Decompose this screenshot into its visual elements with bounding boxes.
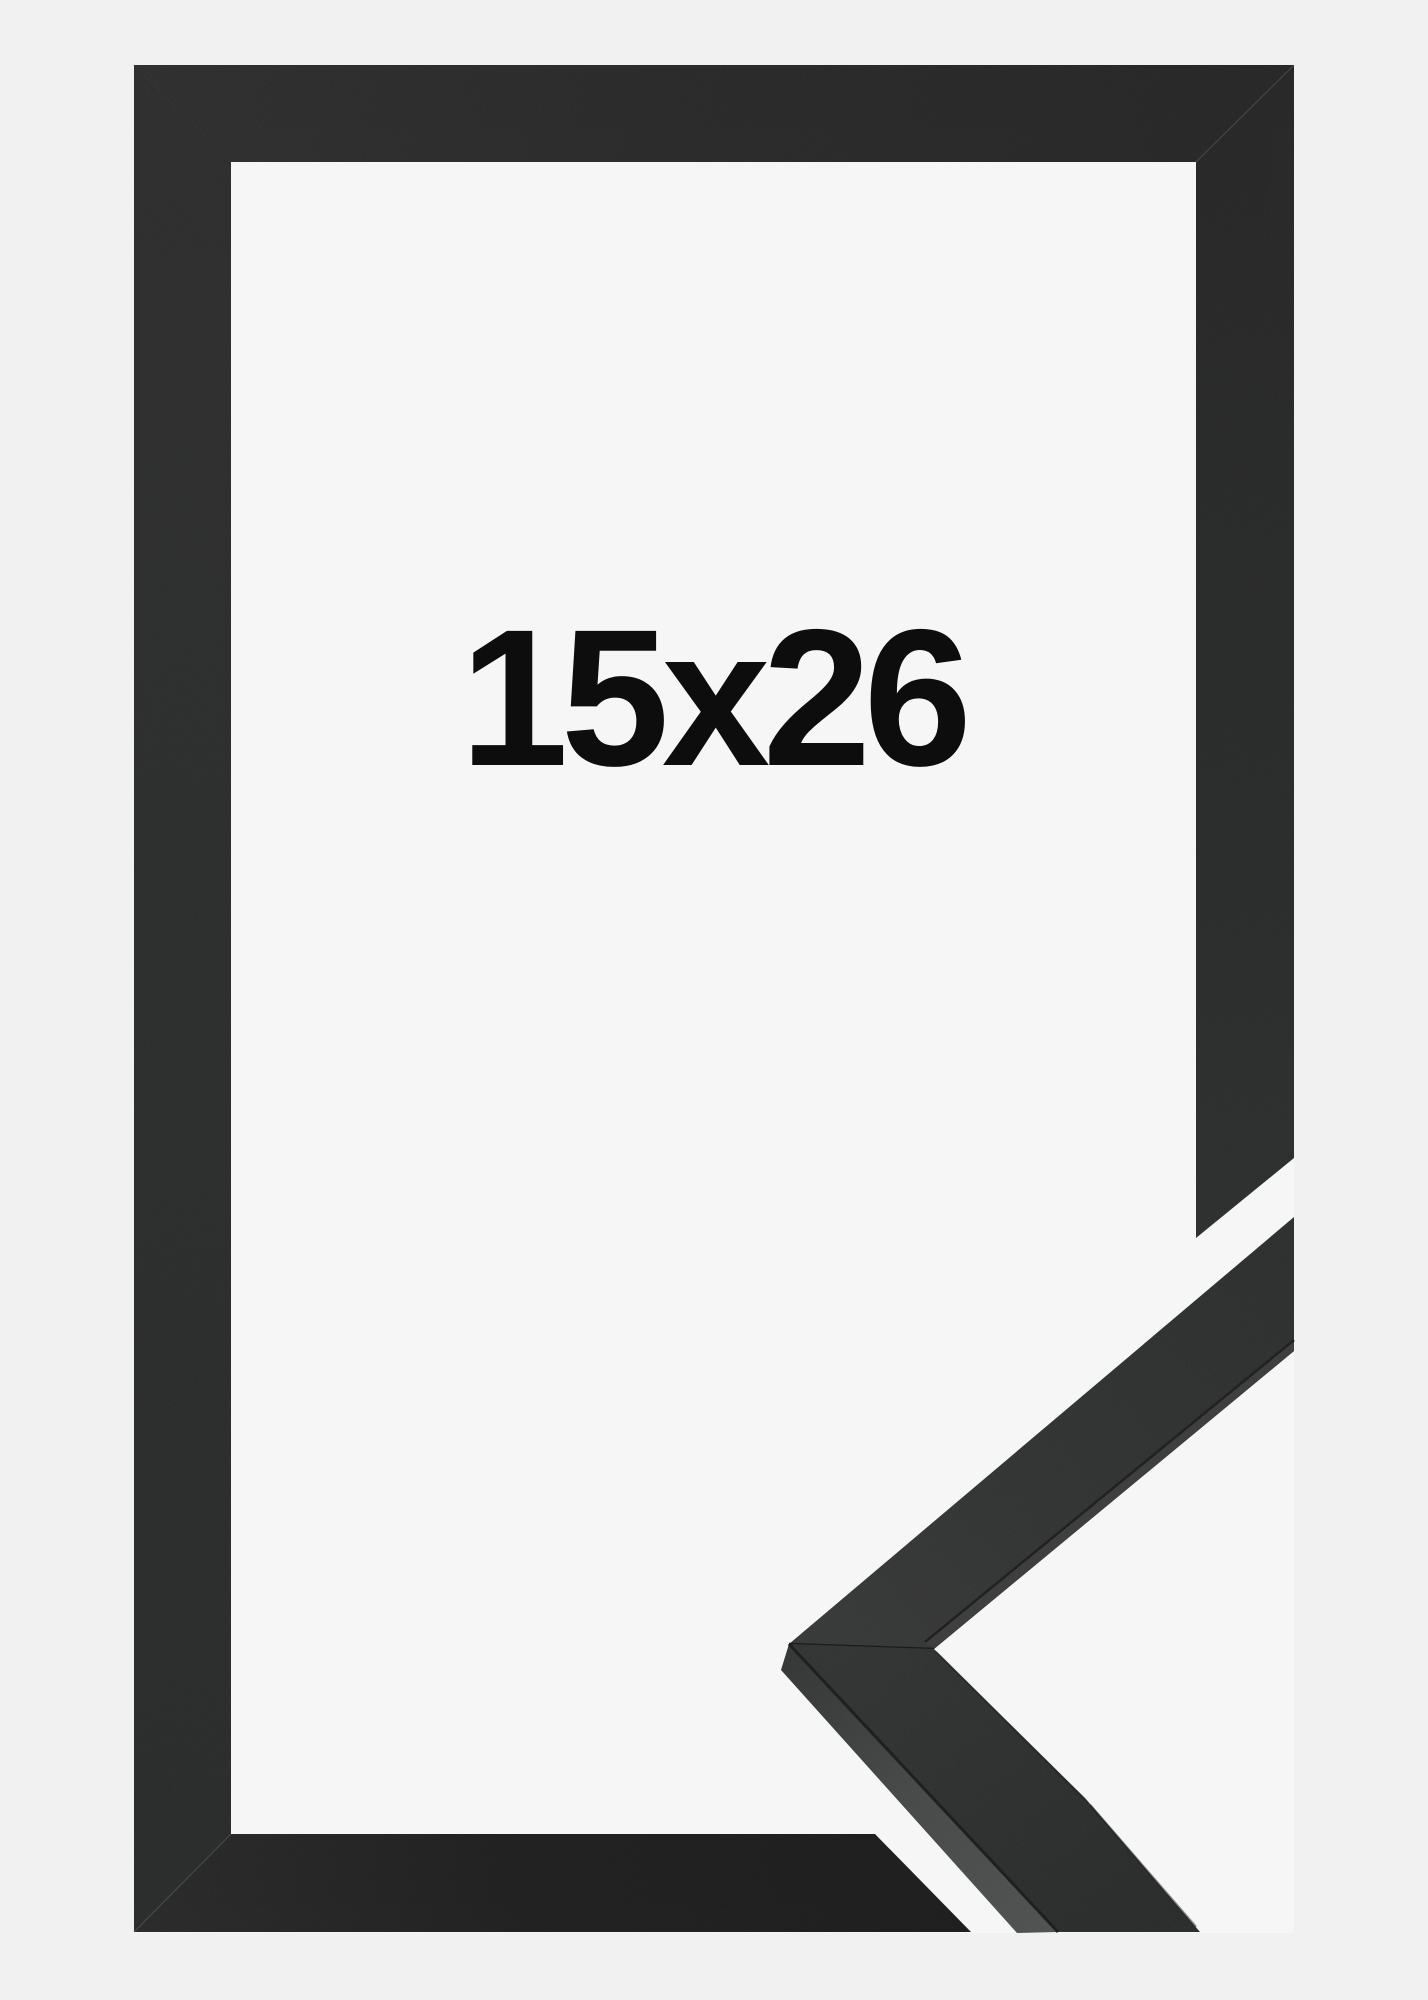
svg-text:15x26: 15x26 — [460, 589, 972, 807]
